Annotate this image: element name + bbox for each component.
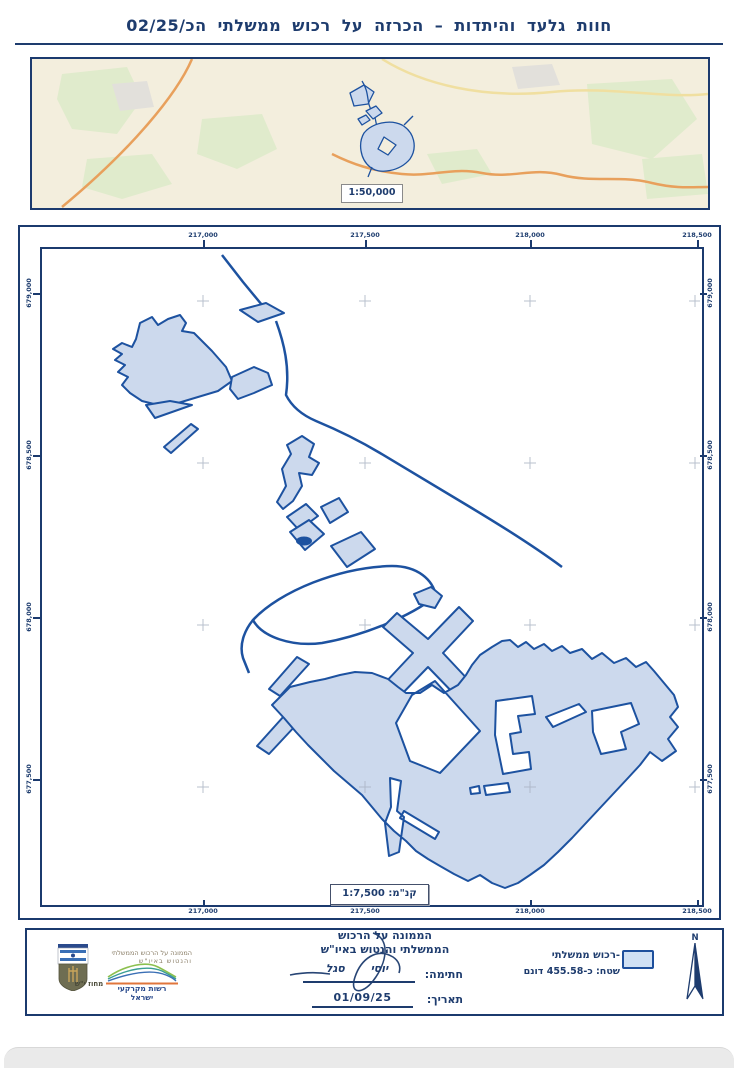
overview-scale-box: 1:50,000 [341,184,403,203]
tick [530,240,532,247]
declared-parcels [113,255,678,888]
coord-label-bottom: 217,500 [350,907,380,915]
coord-label-bottom: 218,000 [515,907,545,915]
page-title: חוות גלעד והיתדות – הכרזה על רכוש ממשלתי… [0,16,738,35]
tick [700,779,707,781]
coord-label-right: 677,500 [706,764,714,794]
org-small-line1: הממונה על הרכוש הממשלתי [110,949,192,957]
tick [33,779,40,781]
date-underline [312,1006,413,1008]
coord-label-right: 679,000 [706,278,714,308]
coord-label-left: 677,500 [25,764,33,794]
tick [203,240,205,247]
grid-crosses [197,295,700,793]
coord-label-right: 678,000 [706,602,714,632]
tick [33,617,40,619]
tick [33,455,40,457]
map-scale-box: קנ"מ: 1:7,500 [330,884,429,905]
tick [700,293,707,295]
tick [365,240,367,247]
coord-label-top: 217,000 [188,231,218,239]
map-scale-value: 1:7,500 [342,888,385,899]
signature-stroke [285,929,425,1001]
bottom-sheet-bar [4,1047,734,1068]
coord-label-top: 218,000 [515,231,545,239]
legend-area-label: שטח: כ-455.58 דונם [490,966,620,977]
tick [700,617,707,619]
coord-label-bottom: 218,500 [682,907,712,915]
coord-label-right: 678,500 [706,440,714,470]
legend-swatch [622,950,654,969]
coord-label-top: 218,500 [682,231,712,239]
north-arrow-icon [684,943,706,1005]
legend-item-label: -רכוש ממשלתי [505,950,620,961]
tick [697,240,699,247]
north-label: N [684,933,706,943]
tick [700,455,707,457]
ila-waves-logo [106,960,178,985]
coord-label-left: 678,000 [25,602,33,632]
declaration-map-page: חוות גלעד והיתדות – הכרזה על רכוש ממשלתי… [0,0,738,1068]
title-rule [15,43,723,45]
coord-label-bottom: 217,000 [188,907,218,915]
tick [33,293,40,295]
ila-name: רשות מקרקעי ישראל [106,984,178,1002]
coord-label-left: 678,500 [25,440,33,470]
coord-label-top: 217,500 [350,231,380,239]
main-map-graphic [40,247,700,903]
coord-label-left: 679,000 [25,278,33,308]
district-label: מחוז י"ש [72,980,106,988]
map-scale-prefix: קנ"מ: [388,888,416,899]
